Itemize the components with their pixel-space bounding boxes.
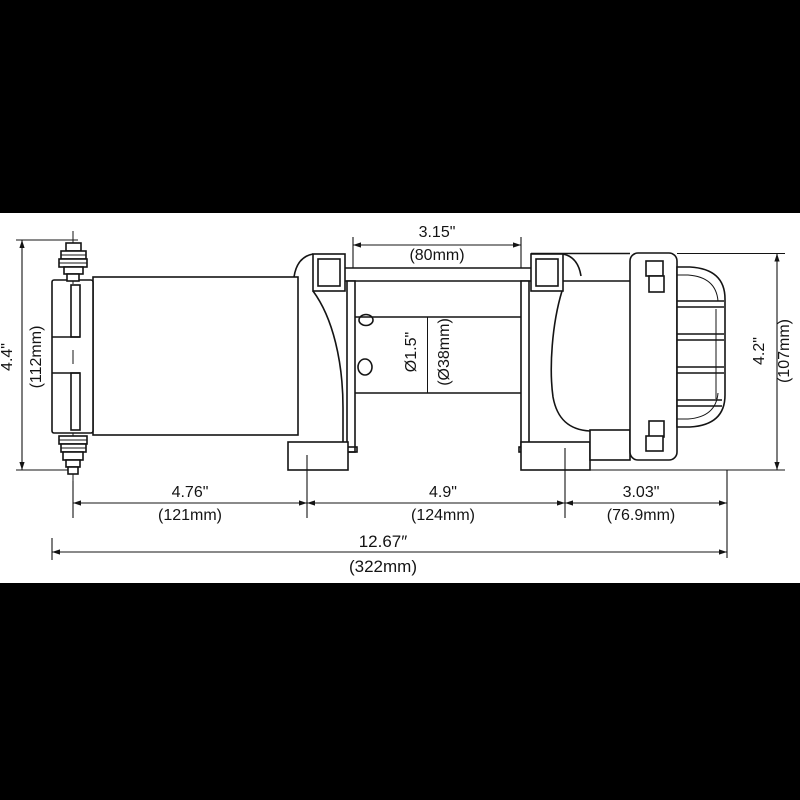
dim-drum-diameter-mm: (Ø38mm) xyxy=(436,318,453,386)
dim-left-height-mm: (112mm) xyxy=(28,326,45,389)
dim-drum-width: 3.15" (80mm) xyxy=(353,224,521,268)
dim-motor-length-in: 4.76" xyxy=(172,484,209,501)
mount-bracket-right xyxy=(521,254,590,470)
winch-drawing: 3.15" (80mm) 4.4" (112mm) 4.2" xyxy=(0,213,800,583)
drum-flange-left xyxy=(345,281,357,452)
dim-left-height-in: 4.4" xyxy=(0,343,16,371)
dim-drum-width-in: 3.15" xyxy=(419,224,456,241)
dim-center-length-mm: (124mm) xyxy=(411,507,475,524)
drawing-sheet: 3.15" (80mm) 4.4" (112mm) 4.2" xyxy=(0,213,800,583)
gearbox-housing xyxy=(630,253,677,460)
dim-right-height-in: 4.2" xyxy=(751,337,768,365)
dim-right-height-mm: (107mm) xyxy=(776,319,793,383)
drum-flange-right xyxy=(519,281,531,452)
terminal-stud-bottom xyxy=(59,433,87,484)
dim-overall-length: 12.67″ (322mm) xyxy=(52,532,727,576)
gearbox-spacer-block xyxy=(590,430,630,460)
tie-bars xyxy=(345,254,630,282)
dim-gearbox-length-in: 3.03" xyxy=(623,484,660,501)
motor-body xyxy=(93,277,298,435)
dim-overall-length-mm: (322mm) xyxy=(349,557,417,576)
dim-center-length-in: 4.9" xyxy=(429,484,457,501)
dim-drum-width-mm: (80mm) xyxy=(409,247,464,264)
top-letterbox-bar xyxy=(0,0,800,213)
clutch-drum-ribbed xyxy=(677,267,725,427)
screenshot-root: 3.15" (80mm) 4.4" (112mm) 4.2" xyxy=(0,0,800,800)
dim-overall-length-in: 12.67″ xyxy=(359,532,408,551)
dim-drum-diameter-in: Ø1.5" xyxy=(403,332,420,372)
bottom-letterbox-bar xyxy=(0,583,800,800)
dim-gearbox-length-mm: (76.9mm) xyxy=(607,507,675,524)
terminal-stud-top xyxy=(59,231,87,284)
dim-motor-length-mm: (121mm) xyxy=(158,507,222,524)
motor-end-cap xyxy=(52,280,93,433)
